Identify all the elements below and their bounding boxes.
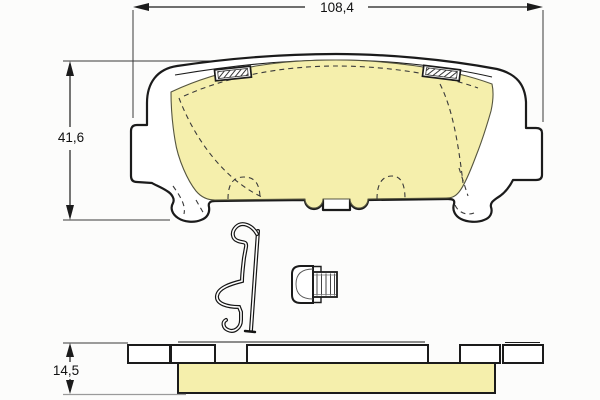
arrow-right-icon [527,3,543,11]
side-view-friction-material [178,363,495,393]
wear-indicator-clip [292,266,337,303]
arrow-down-icon [66,205,74,220]
pad-front-view [131,54,542,222]
arrow-left-icon [133,3,149,11]
arrow-up-icon [66,61,74,76]
friction-material [171,60,493,208]
side-view-left-ear [128,345,170,363]
arrow-up-icon [66,343,74,357]
dim-width-label: 108,4 [320,0,354,15]
drawing-canvas: 108,4 41,6 14,5 [0,0,600,400]
side-view-right-ear [503,345,543,363]
technical-drawing: 108,4 41,6 14,5 [0,0,600,400]
side-view-plate-segment-center [247,345,428,363]
side-view-plate-segment-right [460,345,500,363]
dim-thickness-label: 14,5 [53,363,79,378]
spring-pin-highlight [251,231,258,330]
arrow-down-icon [66,380,74,394]
spring-pin-foot [245,331,255,332]
retaining-spring-clip [217,224,258,332]
dim-height-label: 41,6 [58,130,84,145]
pad-side-view [128,342,543,393]
side-view-plate-segment-left [171,345,215,363]
